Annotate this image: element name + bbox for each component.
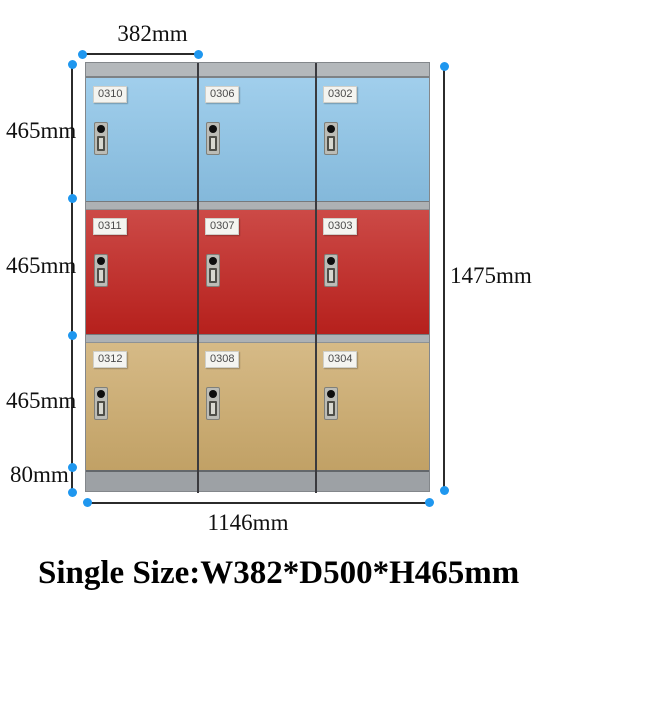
door-number-tag: 0304 <box>323 351 357 368</box>
door-number-tag: 0303 <box>323 218 357 235</box>
dimension-dot <box>425 498 434 507</box>
shelf-divider <box>86 201 429 210</box>
door-number-tag: 0310 <box>93 86 127 103</box>
dimension-dot <box>78 50 87 59</box>
keyhole-icon <box>209 136 217 151</box>
keyhole-icon <box>209 401 217 416</box>
lock-icon <box>206 387 220 420</box>
locker-door: 0302 <box>316 78 429 201</box>
single-width-label: 382mm <box>100 21 205 46</box>
cabinet-top-frame <box>86 63 429 78</box>
door-number-tag: 0308 <box>205 351 239 368</box>
locker-door: 0306 <box>198 78 316 201</box>
door-number-tag: 0312 <box>93 351 127 368</box>
door-number-tag: 0311 <box>93 218 127 235</box>
keyhole-icon <box>327 136 335 151</box>
dimension-dot <box>68 331 77 340</box>
width-dimension-line <box>82 53 199 55</box>
dimension-dot <box>194 50 203 59</box>
locker-row-middle: 0311 0307 0303 <box>86 210 429 334</box>
keyhole-icon <box>327 268 335 283</box>
locker-door: 0310 <box>86 78 198 201</box>
locker-cabinet: 0310 0306 0302 0311 030 <box>85 62 430 492</box>
locker-row-top: 0310 0306 0302 <box>86 78 429 201</box>
lock-icon <box>324 254 338 287</box>
dimension-dot <box>83 498 92 507</box>
row-height-label: 465mm <box>6 118 64 143</box>
dimension-dot <box>440 62 449 71</box>
locker-door: 0308 <box>198 343 316 470</box>
row-height-label: 465mm <box>6 253 64 278</box>
keyhole-icon <box>97 136 105 151</box>
locker-door: 0311 <box>86 210 198 334</box>
total-width-label: 1146mm <box>178 510 318 535</box>
cabinet-base <box>86 470 429 491</box>
locker-row-bottom: 0312 0308 0304 <box>86 343 429 470</box>
dimension-dot <box>68 60 77 69</box>
total-width-dimension-line <box>87 502 430 504</box>
dimension-dot <box>68 194 77 203</box>
column-divider <box>315 63 317 493</box>
shelf-divider <box>86 334 429 343</box>
total-height-dimension-line <box>443 66 445 491</box>
locker-door: 0303 <box>316 210 429 334</box>
lock-icon <box>206 122 220 155</box>
row-height-label: 465mm <box>6 388 64 413</box>
locker-door: 0312 <box>86 343 198 470</box>
keyhole-icon <box>209 268 217 283</box>
single-size-caption: Single Size:W382*D500*H465mm <box>38 555 519 592</box>
lock-icon <box>324 122 338 155</box>
lock-icon <box>94 254 108 287</box>
keyhole-icon <box>97 401 105 416</box>
dimension-dot <box>68 488 77 497</box>
keyhole-icon <box>327 401 335 416</box>
lock-icon <box>324 387 338 420</box>
door-number-tag: 0307 <box>205 218 239 235</box>
locker-door: 0304 <box>316 343 429 470</box>
lock-icon <box>206 254 220 287</box>
column-divider <box>197 63 199 493</box>
lock-icon <box>94 122 108 155</box>
locker-door: 0307 <box>198 210 316 334</box>
lock-icon <box>94 387 108 420</box>
base-height-label: 80mm <box>10 462 62 487</box>
dimension-dot <box>68 463 77 472</box>
keyhole-icon <box>97 268 105 283</box>
door-number-tag: 0306 <box>205 86 239 103</box>
door-number-tag: 0302 <box>323 86 357 103</box>
total-height-label: 1475mm <box>450 263 532 288</box>
dimension-dot <box>440 486 449 495</box>
product-dimension-diagram: 0310 0306 0302 0311 030 <box>0 0 656 704</box>
